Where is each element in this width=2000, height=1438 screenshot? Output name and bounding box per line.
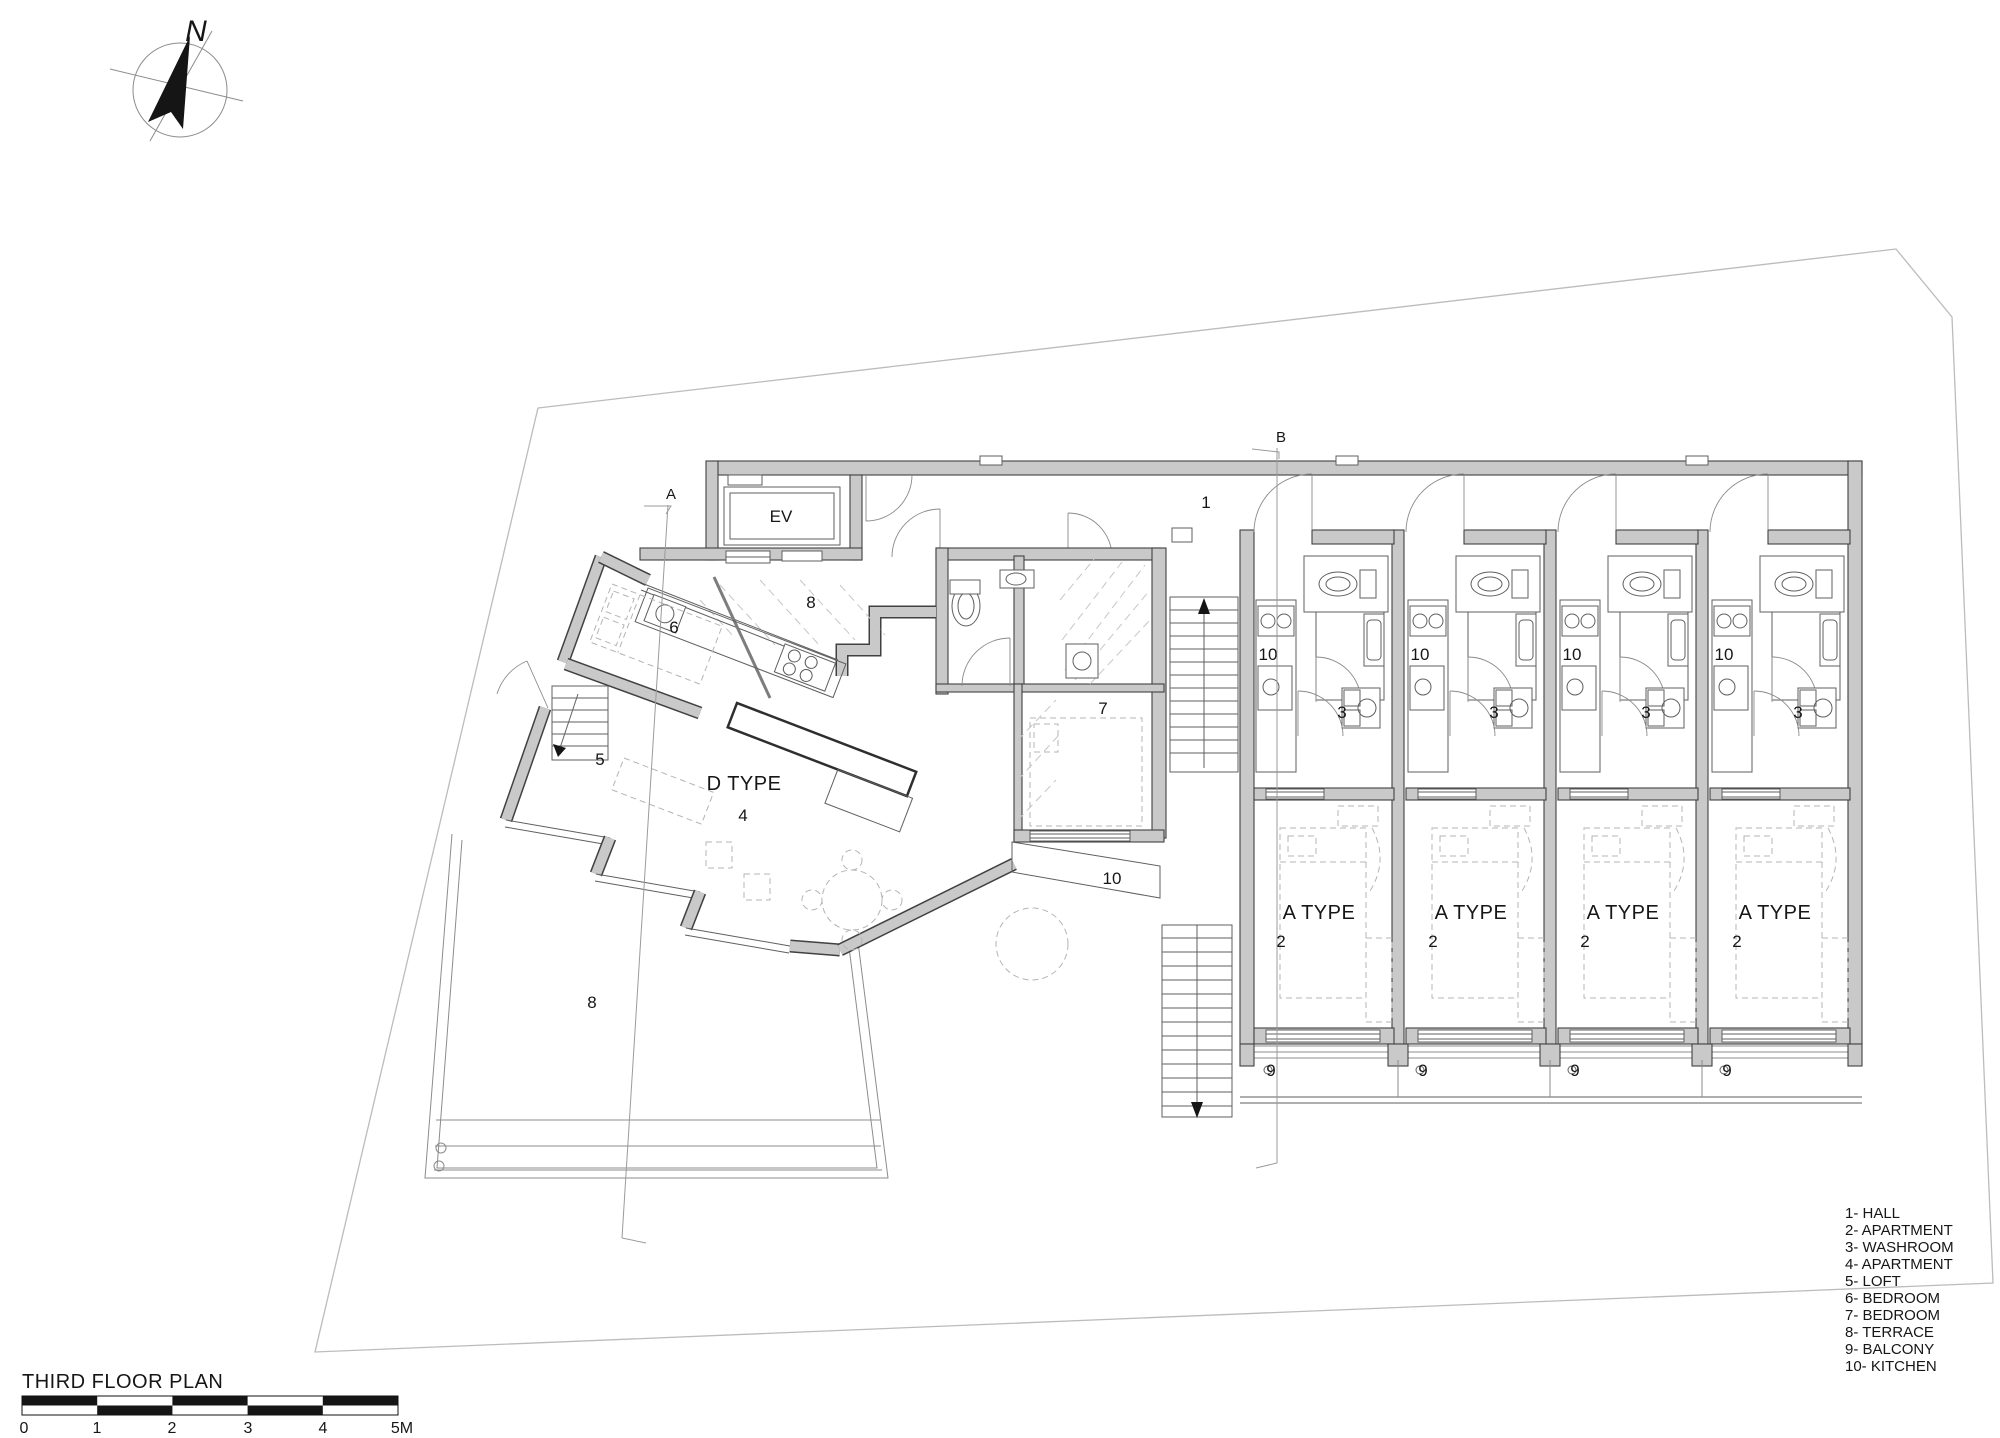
unit3-balcony-label: 9 xyxy=(1570,1061,1579,1080)
terrace-label: 8 xyxy=(587,993,596,1012)
a-type-unit-3 xyxy=(1558,474,1698,1074)
unit1-apartment-label: 2 xyxy=(1276,932,1285,951)
kitchen-strip-label: 10 xyxy=(1103,869,1122,888)
unit2-balcony-label: 9 xyxy=(1418,1061,1427,1080)
legend-item-8: 8- TERRACE xyxy=(1845,1324,1934,1341)
north-label: N xyxy=(185,15,207,48)
unit2-washroom-label: 3 xyxy=(1489,703,1498,722)
unit2-kitchen-label: 10 xyxy=(1411,645,1430,664)
a-type-unit-2 xyxy=(1406,474,1546,1074)
legend-item-2: 2- APARTMENT xyxy=(1845,1222,1953,1239)
unit2-apartment-label: 2 xyxy=(1428,932,1437,951)
scale-2: 2 xyxy=(168,1420,177,1437)
legend-item-1: 1- HALL xyxy=(1845,1205,1900,1222)
a-type-unit-1 xyxy=(1254,474,1394,1074)
bedroom7-label: 7 xyxy=(1098,699,1107,718)
unit2-type-label: A TYPE xyxy=(1435,902,1508,924)
unit4-washroom-label: 3 xyxy=(1793,703,1802,722)
section-b-label: B xyxy=(1276,429,1286,446)
unit4-apartment-label: 2 xyxy=(1732,932,1741,951)
north-arrow: N xyxy=(110,15,243,141)
unit3-kitchen-label: 10 xyxy=(1563,645,1582,664)
unit1-kitchen-label: 10 xyxy=(1259,645,1278,664)
unit4-type-label: A TYPE xyxy=(1739,902,1812,924)
scale-bar: 0 1 2 3 4 5M xyxy=(20,1396,414,1437)
elevator: EV xyxy=(640,461,912,563)
legend-item-9: 9- BALCONY xyxy=(1845,1341,1934,1358)
unit4-kitchen-label: 10 xyxy=(1715,645,1734,664)
north-needle-icon xyxy=(148,36,190,129)
scale-5m: 5M xyxy=(391,1420,413,1437)
loft-stairs xyxy=(552,686,608,760)
hall: 1 xyxy=(892,493,1211,557)
hall-label: 1 xyxy=(1201,493,1210,512)
legend: 1- HALL 2- APARTMENT 3- WASHROOM 4- APAR… xyxy=(1845,1205,1954,1375)
legend-item-5: 5- LOFT xyxy=(1845,1273,1901,1290)
scale-3: 3 xyxy=(244,1420,253,1437)
unit3-apartment-label: 2 xyxy=(1580,932,1589,951)
living-sofa xyxy=(612,758,714,824)
floor-plan-canvas: N 8 EV 1 xyxy=(0,0,2000,1438)
unit1-washroom-label: 3 xyxy=(1337,703,1346,722)
legend-item-7: 7- BEDROOM xyxy=(1845,1307,1940,1324)
terrace: 8 xyxy=(425,834,888,1178)
scale-4: 4 xyxy=(319,1420,328,1437)
legend-item-4: 4- APARTMENT xyxy=(1845,1256,1953,1273)
kitchen-strip: 10 xyxy=(1012,842,1160,898)
courtyard-terrace: 8 xyxy=(700,580,885,646)
washroom-cluster: 7 xyxy=(842,548,1166,842)
bedroom6-label: 6 xyxy=(669,618,678,637)
legend-item-3: 3- WASHROOM xyxy=(1845,1239,1954,1256)
main-stairs xyxy=(1170,528,1238,772)
title-block: THIRD FLOOR PLAN xyxy=(22,1371,223,1393)
section-a-label: A xyxy=(666,486,676,503)
d-type-label: D TYPE xyxy=(707,773,782,795)
legend-item-6: 6- BEDROOM xyxy=(1845,1290,1940,1307)
a-type-unit-4 xyxy=(1710,474,1850,1074)
unit3-type-label: A TYPE xyxy=(1587,902,1660,924)
scale-1: 1 xyxy=(93,1420,102,1437)
unit1-type-label: A TYPE xyxy=(1283,902,1356,924)
exterior-stairs xyxy=(1162,925,1232,1118)
floor-plan-page: N 8 EV 1 xyxy=(0,0,2000,1438)
elevator-label: EV xyxy=(770,507,793,526)
d-type-unit: 6 5 D TYPE 4 xyxy=(497,557,1068,980)
balcony-strip xyxy=(1240,1044,1862,1103)
unit4-balcony-label: 9 xyxy=(1722,1061,1731,1080)
unit1-balcony-label: 9 xyxy=(1266,1061,1275,1080)
loft-label: 5 xyxy=(595,750,604,769)
scale-0: 0 xyxy=(20,1420,29,1437)
courtyard-terrace-label: 8 xyxy=(806,593,815,612)
page-title: THIRD FLOOR PLAN xyxy=(22,1371,223,1393)
unit3-washroom-label: 3 xyxy=(1641,703,1650,722)
apartment4-label: 4 xyxy=(738,806,747,825)
legend-item-10: 10- KITCHEN xyxy=(1845,1358,1937,1375)
